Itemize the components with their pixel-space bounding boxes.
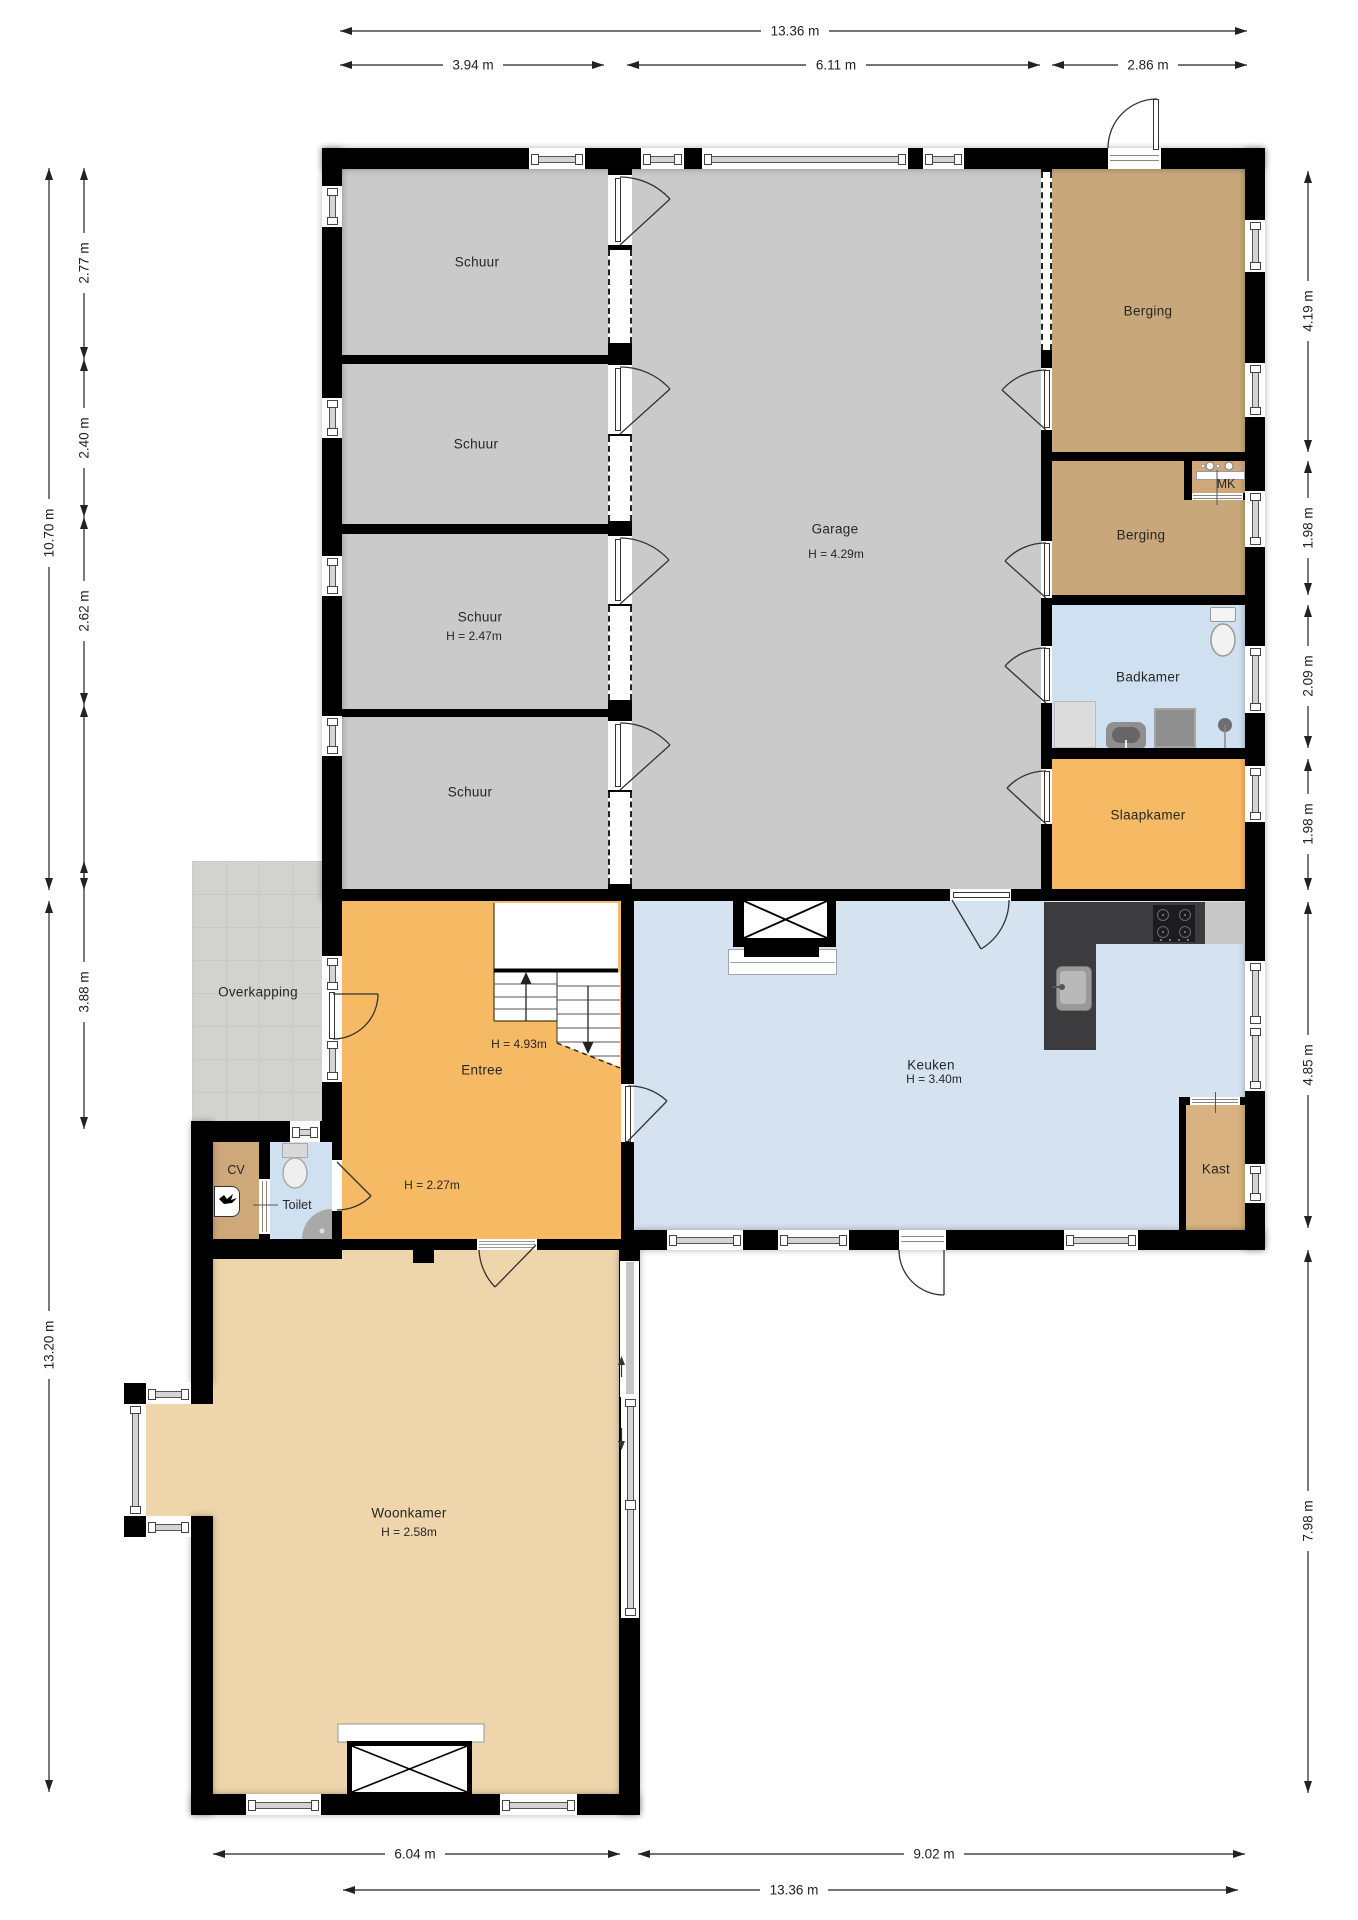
svg-text:4.19 m: 4.19 m (1301, 290, 1316, 331)
svg-text:1.98 m: 1.98 m (1301, 803, 1316, 844)
svg-text:7.98 m: 7.98 m (1301, 1500, 1316, 1541)
svg-text:6.04 m: 6.04 m (394, 1847, 435, 1862)
svg-text:9.02 m: 9.02 m (913, 1847, 954, 1862)
svg-text:2.77 m: 2.77 m (77, 242, 92, 283)
svg-text:2.40 m: 2.40 m (77, 417, 92, 458)
svg-text:1.98 m: 1.98 m (1301, 507, 1316, 548)
svg-text:3.94 m: 3.94 m (452, 58, 493, 73)
svg-text:4.85 m: 4.85 m (1301, 1044, 1316, 1085)
svg-text:13.36 m: 13.36 m (770, 1883, 819, 1898)
svg-text:3.88 m: 3.88 m (77, 971, 92, 1012)
svg-text:2.09 m: 2.09 m (1301, 655, 1316, 696)
svg-text:6.11 m: 6.11 m (816, 58, 856, 73)
svg-text:2.86 m: 2.86 m (1127, 58, 1168, 73)
svg-text:10.70 m: 10.70 m (42, 509, 57, 558)
svg-text:13.20 m: 13.20 m (42, 1321, 57, 1370)
svg-text:13.36 m: 13.36 m (771, 24, 820, 39)
svg-text:2.62 m: 2.62 m (77, 590, 92, 631)
